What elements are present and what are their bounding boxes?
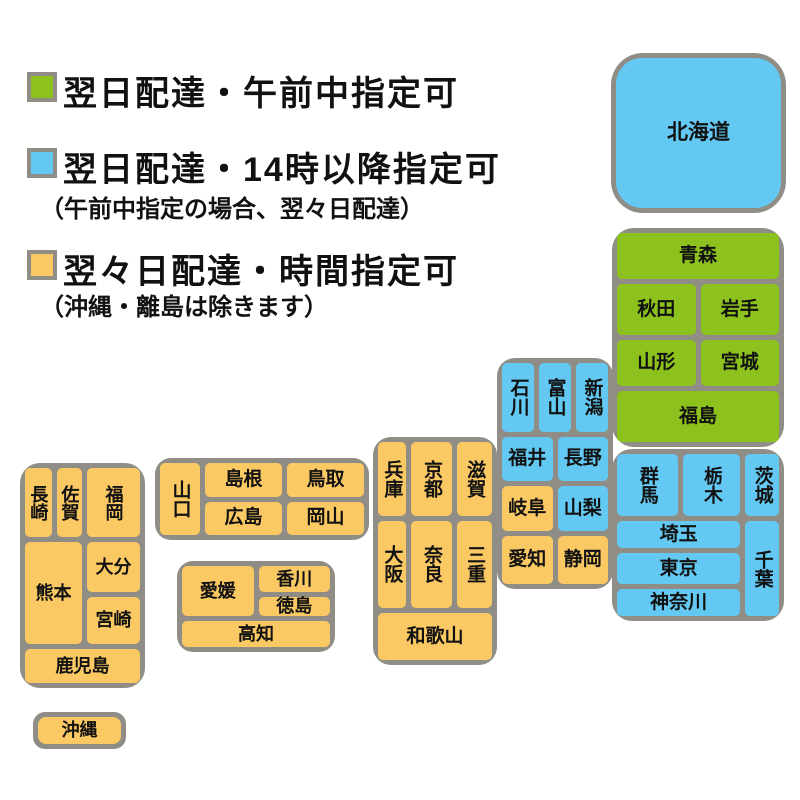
prefecture-shiga: 滋賀 [457,442,492,516]
prefecture-okinawa: 沖縄 [38,717,121,744]
region-tohoku: 青森秋田岩手山形宮城福島 [612,228,784,447]
legend-label-next-day-morning: 翌日配達・午前中指定可 [63,66,459,115]
prefecture-toyama: 富山 [539,363,571,432]
prefecture-fukui: 福井 [502,437,553,482]
prefecture-yamanashi: 山梨 [558,486,609,530]
prefecture-nagano: 長野 [558,437,609,482]
prefecture-hiroshima: 広島 [205,502,282,536]
region-shikoku: 愛媛香川徳島高知 [177,561,335,652]
region-chubu: 石川富山新潟福井長野岐阜山梨愛知静岡 [497,358,613,589]
prefecture-kagoshima: 鹿児島 [25,649,140,683]
prefecture-ibaraki: 茨城 [745,454,779,516]
prefecture-miyagi: 宮城 [701,340,780,386]
prefecture-kochi: 高知 [182,621,330,647]
prefecture-iwate: 岩手 [701,284,780,334]
prefecture-ishikawa: 石川 [502,363,534,432]
prefecture-miyazaki: 宮崎 [87,597,140,644]
legend-swatch-orange-icon [27,250,57,280]
prefecture-okayama: 岡山 [287,502,364,536]
prefecture-shimane: 島根 [205,463,282,497]
prefecture-tottori: 鳥取 [287,463,364,497]
prefecture-ehime: 愛媛 [182,566,254,616]
prefecture-fukuoka: 福岡 [87,468,140,537]
legend-note-two-days: （沖縄・離島は除きます） [40,287,328,322]
prefecture-shizuoka: 静岡 [558,536,609,584]
prefecture-gunma: 群馬 [617,454,678,516]
prefecture-aomori: 青森 [617,233,779,279]
region-okinawa: 沖縄 [33,712,126,749]
prefecture-saga: 佐賀 [57,468,82,537]
prefecture-hokkaido: 北海道 [616,58,781,208]
prefecture-gifu: 岐阜 [502,486,553,530]
prefecture-osaka: 大阪 [378,521,406,608]
prefecture-yamagata: 山形 [617,340,696,386]
prefecture-niigata: 新潟 [576,363,608,432]
prefecture-oita: 大分 [87,542,140,591]
prefecture-kagawa: 香川 [259,566,331,592]
region-kansai: 兵庫京都滋賀大阪奈良三重和歌山 [373,437,497,665]
legend-swatch-green-icon [27,72,57,102]
prefecture-fukushima: 福島 [617,391,779,442]
legend-label-two-days: 翌々日配達・時間指定可 [63,244,459,293]
prefecture-mie: 三重 [457,521,492,608]
legend-note-after14: （午前中指定の場合、翌々日配達） [40,189,424,224]
prefecture-kanagawa: 神奈川 [617,589,740,616]
prefecture-nagasaki: 長崎 [25,468,52,537]
legend-label-next-day-after14: 翌日配達・14時以降指定可 [63,142,501,191]
legend-swatch-blue-icon [27,148,57,178]
prefecture-yamaguchi: 山口 [160,463,200,535]
prefecture-saitama: 埼玉 [617,521,740,548]
prefecture-tochigi: 栃木 [683,454,740,516]
prefecture-chiba: 千葉 [745,521,779,616]
region-kyushu: 長崎佐賀福岡熊本大分宮崎鹿児島 [20,463,145,688]
prefecture-tokyo: 東京 [617,553,740,584]
region-kanto: 群馬栃木茨城埼玉東京神奈川千葉 [612,449,784,621]
prefecture-akita: 秋田 [617,284,696,334]
region-hokkaido: 北海道 [611,53,786,213]
prefecture-aichi: 愛知 [502,536,553,584]
prefecture-tokushima: 徳島 [259,597,331,616]
prefecture-nara: 奈良 [411,521,453,608]
region-chugoku: 山口島根鳥取広島岡山 [155,458,369,540]
prefecture-hyogo: 兵庫 [378,442,406,516]
prefecture-kumamoto: 熊本 [25,542,82,644]
prefecture-wakayama: 和歌山 [378,613,492,660]
prefecture-kyoto: 京都 [411,442,453,516]
delivery-area-infographic: 翌日配達・午前中指定可 翌日配達・14時以降指定可 （午前中指定の場合、翌々日配… [0,0,800,800]
